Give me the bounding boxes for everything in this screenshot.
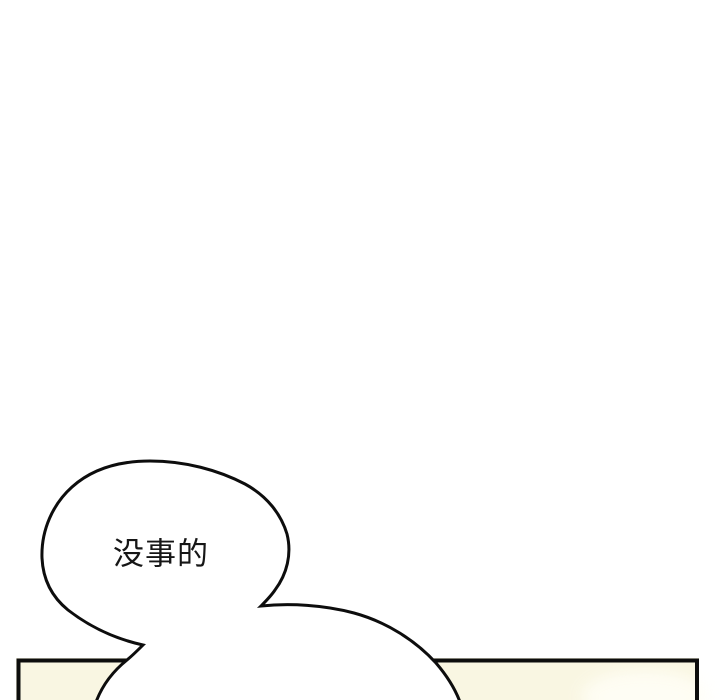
comic-page: 没事的 <box>0 0 720 700</box>
speech-bubble-text: 没事的 <box>113 529 209 574</box>
comic-artwork <box>0 0 720 700</box>
